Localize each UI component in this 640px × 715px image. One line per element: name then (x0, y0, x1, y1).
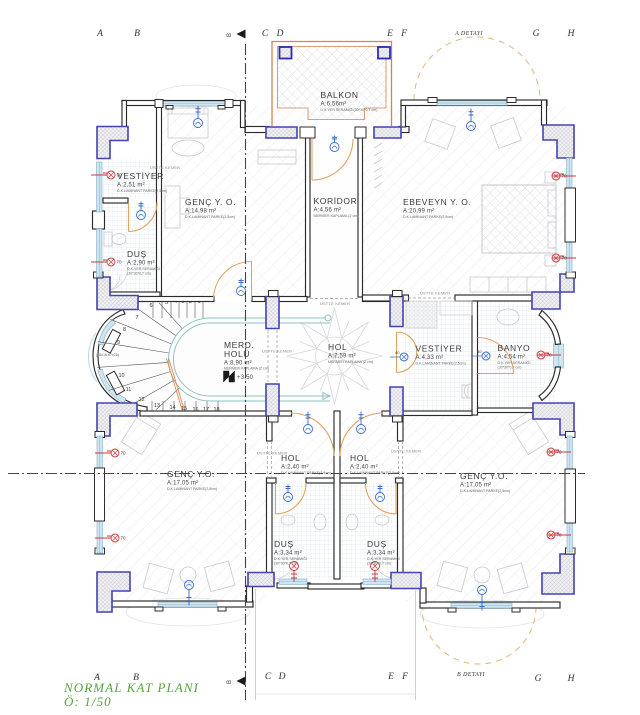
svg-text:D.K.LAMİNANT PARKE(2,5cm): D.K.LAMİNANT PARKE(2,5cm) (416, 361, 466, 366)
svg-text:DUŞ: DUŞ (127, 249, 147, 259)
svg-text:VESTİYER: VESTİYER (117, 171, 164, 181)
svg-text:70: 70 (561, 256, 567, 261)
svg-text:B: B (227, 33, 233, 37)
svg-text:(30*30*0,7 cm): (30*30*0,7 cm) (127, 272, 151, 276)
svg-text:A:17,05 m²: A:17,05 m² (167, 481, 198, 487)
svg-text:F: F (400, 29, 407, 39)
svg-text:D.K.YER SERAMİĞİ: D.K.YER SERAMİĞİ (274, 556, 307, 561)
svg-text:HOL: HOL (328, 342, 347, 352)
svg-text:A:6,56m²: A:6,56m² (321, 102, 347, 108)
svg-text:MERMER KAPLAMA (2 cm): MERMER KAPLAMA (2 cm) (224, 367, 269, 371)
svg-text:D.K.LAMİNANT PARKE(2,5cm): D.K.LAMİNANT PARKE(2,5cm) (167, 486, 217, 491)
svg-text:G: G (535, 674, 542, 684)
svg-text:EBEVEYN Y. O.: EBEVEYN Y. O. (403, 197, 471, 207)
svg-text:70: 70 (120, 451, 126, 456)
svg-text:D.K.LAMİNANT PARKE(2,5cm): D.K.LAMİNANT PARKE(2,5cm) (281, 470, 331, 475)
svg-text:A:2,51 m²: A:2,51 m² (117, 183, 145, 189)
svg-text:A: A (96, 29, 103, 39)
svg-text:DUŞ: DUŞ (274, 539, 294, 549)
svg-text:ÜSTTE KEMER: ÜSTTE KEMER (320, 302, 350, 306)
svg-text:+3,50: +3,50 (237, 375, 254, 381)
svg-text:KORİDOR: KORİDOR (314, 196, 358, 206)
svg-text:C: C (262, 29, 269, 39)
svg-text:D.K.LAMİNANT PARKE(2,5cm): D.K.LAMİNANT PARKE(2,5cm) (117, 188, 167, 193)
svg-text:D.K.YER SERAMİĞİ: D.K.YER SERAMİĞİ (367, 556, 400, 561)
svg-text:A:14,98 m²: A:14,98 m² (185, 209, 216, 215)
svg-text:ÜSTTE KEMER: ÜSTTE KEMER (391, 450, 421, 454)
svg-text:MERMER KAPLAMA (2 cm): MERMER KAPLAMA (2 cm) (314, 214, 359, 218)
svg-text:D.K.LAMİNANT PARKE(2,5cm): D.K.LAMİNANT PARKE(2,5cm) (185, 214, 235, 219)
svg-text:(30*30*0,7 cm): (30*30*0,7 cm) (367, 562, 391, 566)
svg-text:H: H (567, 29, 576, 39)
svg-text:B DETAYI: B DETAYI (457, 672, 486, 678)
svg-text:A:20,99 m²: A:20,99 m² (403, 209, 434, 215)
svg-text:A:7,59 m²: A:7,59 m² (328, 354, 356, 360)
svg-text:70: 70 (546, 353, 552, 358)
svg-text:14: 14 (169, 405, 175, 411)
svg-text:40: 40 (395, 350, 400, 355)
svg-text:E: E (386, 29, 393, 39)
svg-text:B: B (227, 680, 233, 684)
svg-text:D: D (276, 29, 284, 39)
svg-text:BANYO: BANYO (498, 343, 531, 353)
svg-text:A:4,33 m²: A:4,33 m² (416, 355, 444, 361)
svg-text:A DETAYI: A DETAYI (454, 31, 483, 37)
svg-text:BALKON: BALKON (321, 90, 359, 100)
svg-text:A:2,40 m²: A:2,40 m² (350, 465, 378, 471)
svg-text:40: 40 (477, 349, 482, 354)
svg-text:VESTİYER: VESTİYER (416, 344, 463, 354)
svg-text:B: B (134, 29, 140, 39)
svg-text:ÜSTTE KEMER: ÜSTTE KEMER (257, 452, 287, 456)
svg-text:A:2,90 m²: A:2,90 m² (127, 261, 155, 267)
svg-text:Ö: 1/50: Ö: 1/50 (64, 694, 112, 709)
svg-text:10: 10 (118, 373, 124, 379)
svg-text:GENÇ Y. O.: GENÇ Y. O. (185, 197, 236, 207)
svg-text:DUŞ: DUŞ (367, 539, 387, 549)
svg-text:D: D (278, 672, 286, 682)
svg-text:GENÇ Y.O.: GENÇ Y.O. (167, 469, 215, 479)
svg-text:(18x16,67x26): (18x16,67x26) (96, 353, 119, 357)
svg-text:A:4,56 m²: A:4,56 m² (314, 208, 342, 214)
svg-text:(30*30*0,7 cm): (30*30*0,7 cm) (274, 562, 298, 566)
svg-text:13: 13 (154, 403, 160, 409)
svg-text:70: 70 (116, 260, 122, 265)
svg-text:D.K.YER SERAMİĞİ: D.K.YER SERAMİĞİ (498, 360, 531, 365)
svg-text:A:3,34 m²: A:3,34 m² (274, 551, 302, 557)
svg-text:H: H (567, 674, 576, 684)
svg-text:HOLÜ: HOLÜ (224, 349, 250, 359)
svg-text:G: G (533, 29, 540, 39)
svg-text:9: 9 (117, 340, 120, 346)
svg-text:(30*30*0,7 cm): (30*30*0,7 cm) (498, 366, 522, 370)
svg-text:D.K.YER SERAMİĞİ(30*30*0,7 cm): D.K.YER SERAMİĞİ(30*30*0,7 cm) (321, 107, 378, 112)
svg-text:C: C (265, 672, 272, 682)
svg-text:6: 6 (149, 303, 152, 309)
svg-text:A:17,05 m²: A:17,05 m² (460, 483, 491, 489)
svg-text:70: 70 (561, 174, 567, 179)
svg-text:D.K.LAMİNANT PARKE(2,5cm): D.K.LAMİNANT PARKE(2,5cm) (460, 488, 510, 493)
svg-text:ÜSTTE KEMER: ÜSTTE KEMER (262, 350, 292, 354)
svg-text:12: 12 (138, 397, 144, 403)
svg-text:11: 11 (126, 387, 132, 393)
svg-text:NORMAL KAT PLANI: NORMAL KAT PLANI (63, 680, 199, 695)
svg-text:70: 70 (556, 450, 562, 455)
svg-text:D.K.LAMİNANT PARKE(2,5cm): D.K.LAMİNANT PARKE(2,5cm) (350, 470, 400, 475)
svg-text:70: 70 (120, 536, 126, 541)
svg-text:A:4,54 m²: A:4,54 m² (498, 355, 526, 361)
svg-text:E: E (387, 672, 394, 682)
svg-text:A:2,40 m²: A:2,40 m² (281, 465, 309, 471)
svg-text:MERMER KAPLAMA (2 cm): MERMER KAPLAMA (2 cm) (328, 360, 373, 364)
svg-text:A:3,34 m²: A:3,34 m² (367, 551, 395, 557)
svg-text:GENÇ Y.O.: GENÇ Y.O. (460, 471, 508, 481)
svg-text:D.K.YER SERAMİĞİ: D.K.YER SERAMİĞİ (127, 266, 160, 271)
svg-text:70: 70 (556, 533, 562, 538)
svg-text:ÜSTTE KEMER: ÜSTTE KEMER (420, 292, 450, 296)
svg-text:ÜSTTE KEMER: ÜSTTE KEMER (150, 166, 180, 170)
svg-text:D.K.LAMİNANT PARKE(2,5cm): D.K.LAMİNANT PARKE(2,5cm) (403, 214, 453, 219)
svg-text:HOL: HOL (350, 453, 369, 463)
svg-text:7: 7 (135, 315, 138, 321)
svg-text:F: F (401, 672, 408, 682)
svg-text:8: 8 (123, 327, 126, 333)
